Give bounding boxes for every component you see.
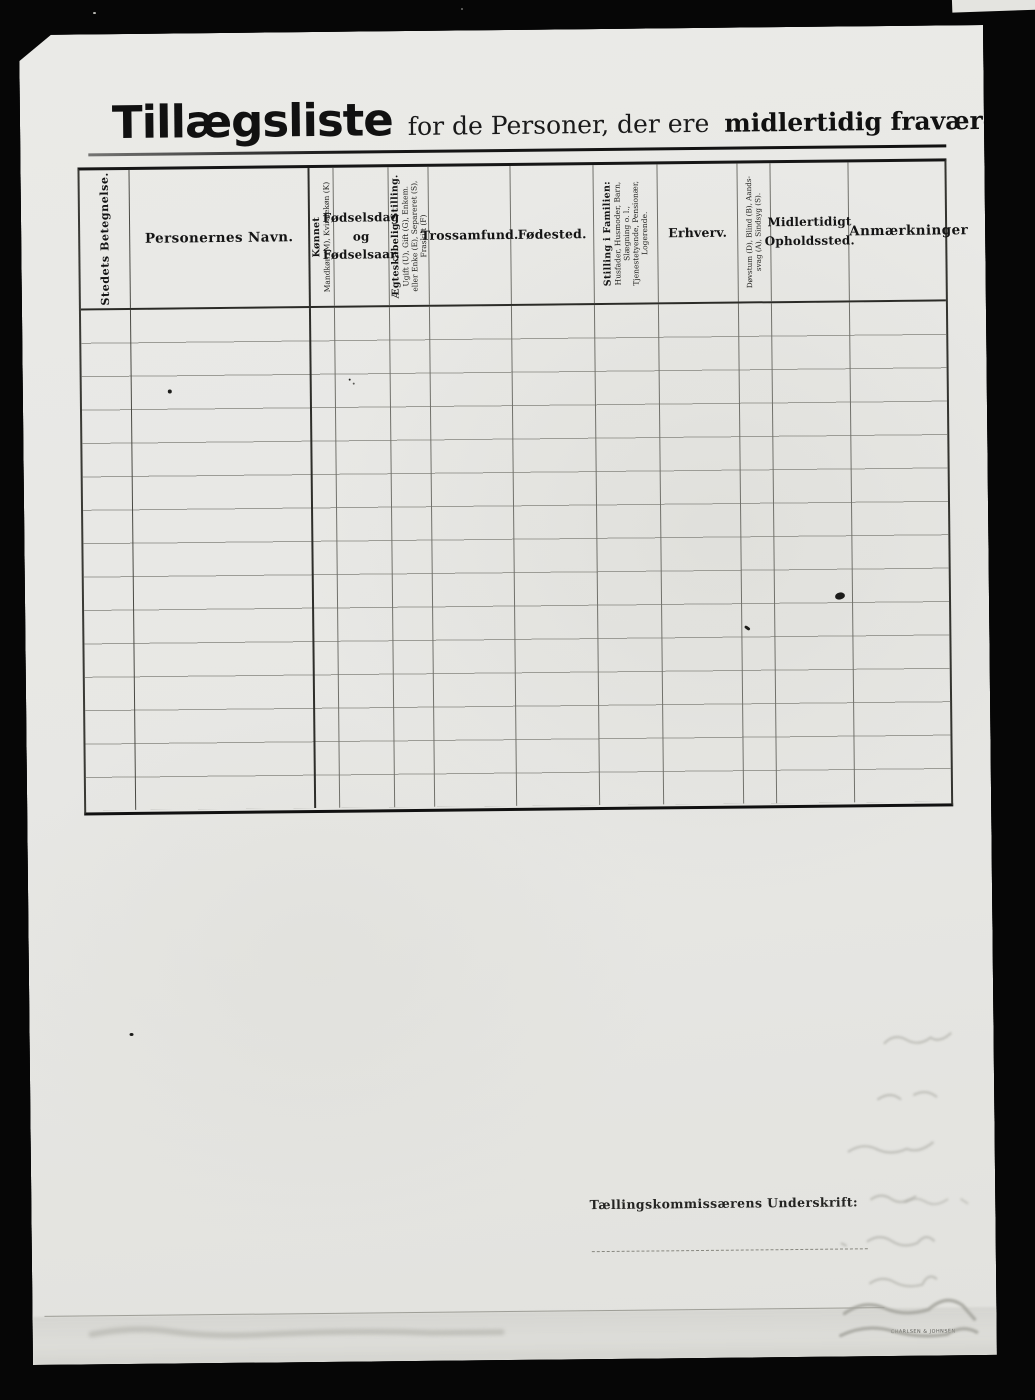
ink-spot [353,383,355,385]
header-cell-stedets-betegnelse: Stedets Betegnelse. [79,170,130,309]
signature-line [592,1248,868,1252]
body-column [512,305,600,806]
form-title-subtitle: for de Personer, der ere [408,109,710,141]
scan-viewport: { "page_title": { "main": "Tillægsliste"… [0,0,1035,1400]
form-title-subtitle-bold: midlertidig fraværende. [724,105,1035,138]
header-cell-foedested: Fødested. [510,165,594,304]
header-cell-stilling-i-familien: Stilling i Familien: Husfader, Husmoder,… [593,164,658,303]
header-cell-foedselsdag: Fødselsdag og Fødselsaar. [333,167,389,306]
header-cell-anmaerkninger: Anmærkninger [848,161,968,300]
form-title: Tillægsliste for de Personer, der ere mi… [112,87,963,149]
column-label: Erhverv. [668,223,727,243]
column-label: Trossamfund. [421,225,519,245]
form-title-main: Tillægsliste [112,93,393,149]
bottom-edge-smudge [88,1316,508,1346]
column-label: Personernes Navn. [145,227,294,249]
body-column [131,308,316,810]
table-header-row: Stedets Betegnelse. Personernes Navn. Kø… [79,161,945,310]
column-label: Stedets Betegnelse. [97,172,112,306]
ink-spot [349,379,351,381]
header-cell-personernes-navn: Personernes Navn. [129,168,310,308]
column-label: Fødested. [518,224,587,244]
dust-speck [93,12,96,14]
ink-spot [130,1033,134,1036]
body-column [595,304,664,805]
body-column [659,304,744,805]
body-column [772,302,855,803]
column-label: Døvstum (D), Blind (B), Aands- svag (A),… [745,176,763,288]
header-cell-midlertidigt-opholdssted: Midlertidigt Opholdssted. [770,162,849,301]
bleed-through-handwriting [829,1020,997,1342]
body-column [430,306,517,807]
body-column [335,307,395,808]
table-body-empty-rows [81,301,951,810]
body-column [390,307,435,807]
column-label: Anmærkninger [849,220,968,242]
header-cell-trossamfund: Trossamfund. [428,166,511,305]
scanned-census-form: Tillægsliste for de Personer, der ere mi… [19,25,997,1365]
dust-speck [461,8,463,10]
column-label: Stilling i Familien: Husfader, Husmoder,… [601,181,649,287]
body-column [81,310,136,810]
bleed-through-marks [899,1185,979,1216]
body-column [739,303,777,803]
underlying-sheet-corner [952,0,1035,13]
census-table: Stedets Betegnelse. Personernes Navn. Kø… [77,158,953,815]
column-label: Midlertidigt Opholdssted. [764,213,855,251]
ink-spot [168,390,172,394]
body-column [850,301,951,802]
header-cell-erhverv: Erhverv. [657,164,738,303]
